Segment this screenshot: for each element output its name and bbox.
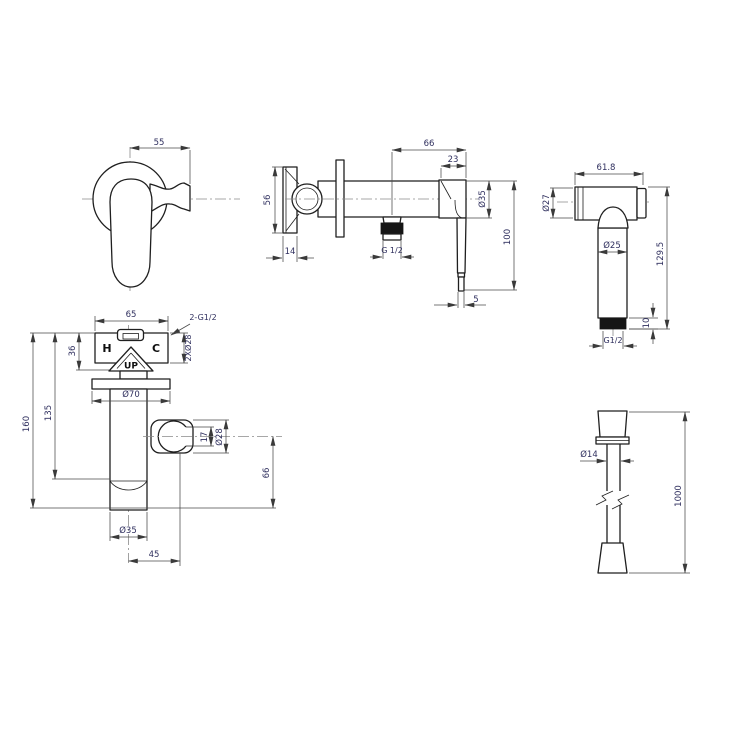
dim-handle-diameter: Ø35 <box>477 190 488 208</box>
view-hose: Ø14 1000 <box>580 411 690 573</box>
label-inlet-thread: 2-G1/2 <box>189 313 216 322</box>
handle-lever-side <box>457 218 466 273</box>
sprayer-thread-band <box>600 318 626 329</box>
flange-disc-side <box>336 160 344 237</box>
dim-depth: 66 <box>424 139 435 149</box>
dim-total-height: 160 <box>22 416 32 432</box>
view-valve-front: H C UP 65 2-G1/2 36 2XØ28 Ø70 135 160 <box>22 310 282 566</box>
handle-neck <box>150 183 190 212</box>
dim-head-diameter: Ø27 <box>541 194 552 212</box>
dim-holder-drop: 66 <box>262 468 272 479</box>
dim-holder-offset: 45 <box>149 550 160 560</box>
dim-hose-length: 1000 <box>674 485 684 507</box>
dim-body-width: 65 <box>126 310 137 320</box>
outlet-thread-band <box>381 223 403 234</box>
dim-flange-diameter: Ø70 <box>122 389 140 400</box>
dim-grip-diameter: Ø25 <box>603 240 621 251</box>
dim-holder-opening: 17 <box>200 432 210 443</box>
dim-body-height: 36 <box>68 346 78 357</box>
view-handle-front: 55 <box>82 138 240 292</box>
handle-lever <box>110 179 152 287</box>
break-line-1 <box>596 491 613 505</box>
handle-pivot <box>439 180 466 218</box>
outlet-tip <box>383 234 401 240</box>
dim-head-width: 61.8 <box>597 163 616 173</box>
hose-bottom-fitting <box>598 543 627 573</box>
hose-tube <box>607 444 620 543</box>
neck <box>120 371 147 379</box>
label-up: UP <box>124 362 138 372</box>
view-sprayer: 61.8 Ø27 Ø25 10 G1/2 129.5 <box>541 163 670 349</box>
dim-handle-length: 100 <box>503 229 513 245</box>
dim-thread-length: 10 <box>642 318 652 329</box>
dim-plate-thickness: 14 <box>285 247 296 257</box>
dim-inlet-holes: 2XØ28 <box>183 334 193 361</box>
dim-lever-tip: 5 <box>473 295 478 305</box>
technical-drawing-sheet: 55 66 23 56 14 <box>0 0 742 742</box>
dim-spout-height: 135 <box>44 405 54 421</box>
dim-holder-diameter: Ø28 <box>214 428 225 446</box>
label-cold: C <box>152 342 160 355</box>
technical-drawing-canvas: 55 66 23 56 14 <box>0 0 742 742</box>
view-valve-side: 66 23 56 14 G 1/2 Ø35 100 5 <box>263 139 517 308</box>
dim-hose-diameter: Ø14 <box>580 449 598 460</box>
dim-spout-diameter: Ø35 <box>119 525 137 536</box>
label-hot: H <box>102 342 111 355</box>
flange-front <box>92 379 170 389</box>
dim-handle-width: 55 <box>154 138 165 148</box>
outlet-collar <box>383 217 401 223</box>
spout-tube <box>110 389 147 510</box>
lever-tip <box>459 277 465 291</box>
dim-plate-height: 56 <box>263 195 273 206</box>
label-sprayer-thread: G1/2 <box>603 336 622 345</box>
label-outlet-thread: G 1/2 <box>381 246 403 255</box>
sprayer-cap <box>637 189 646 219</box>
dim-handle-width: 23 <box>448 155 459 165</box>
dim-total-length: 129.5 <box>656 242 666 266</box>
hose-top-fitting <box>598 411 627 437</box>
